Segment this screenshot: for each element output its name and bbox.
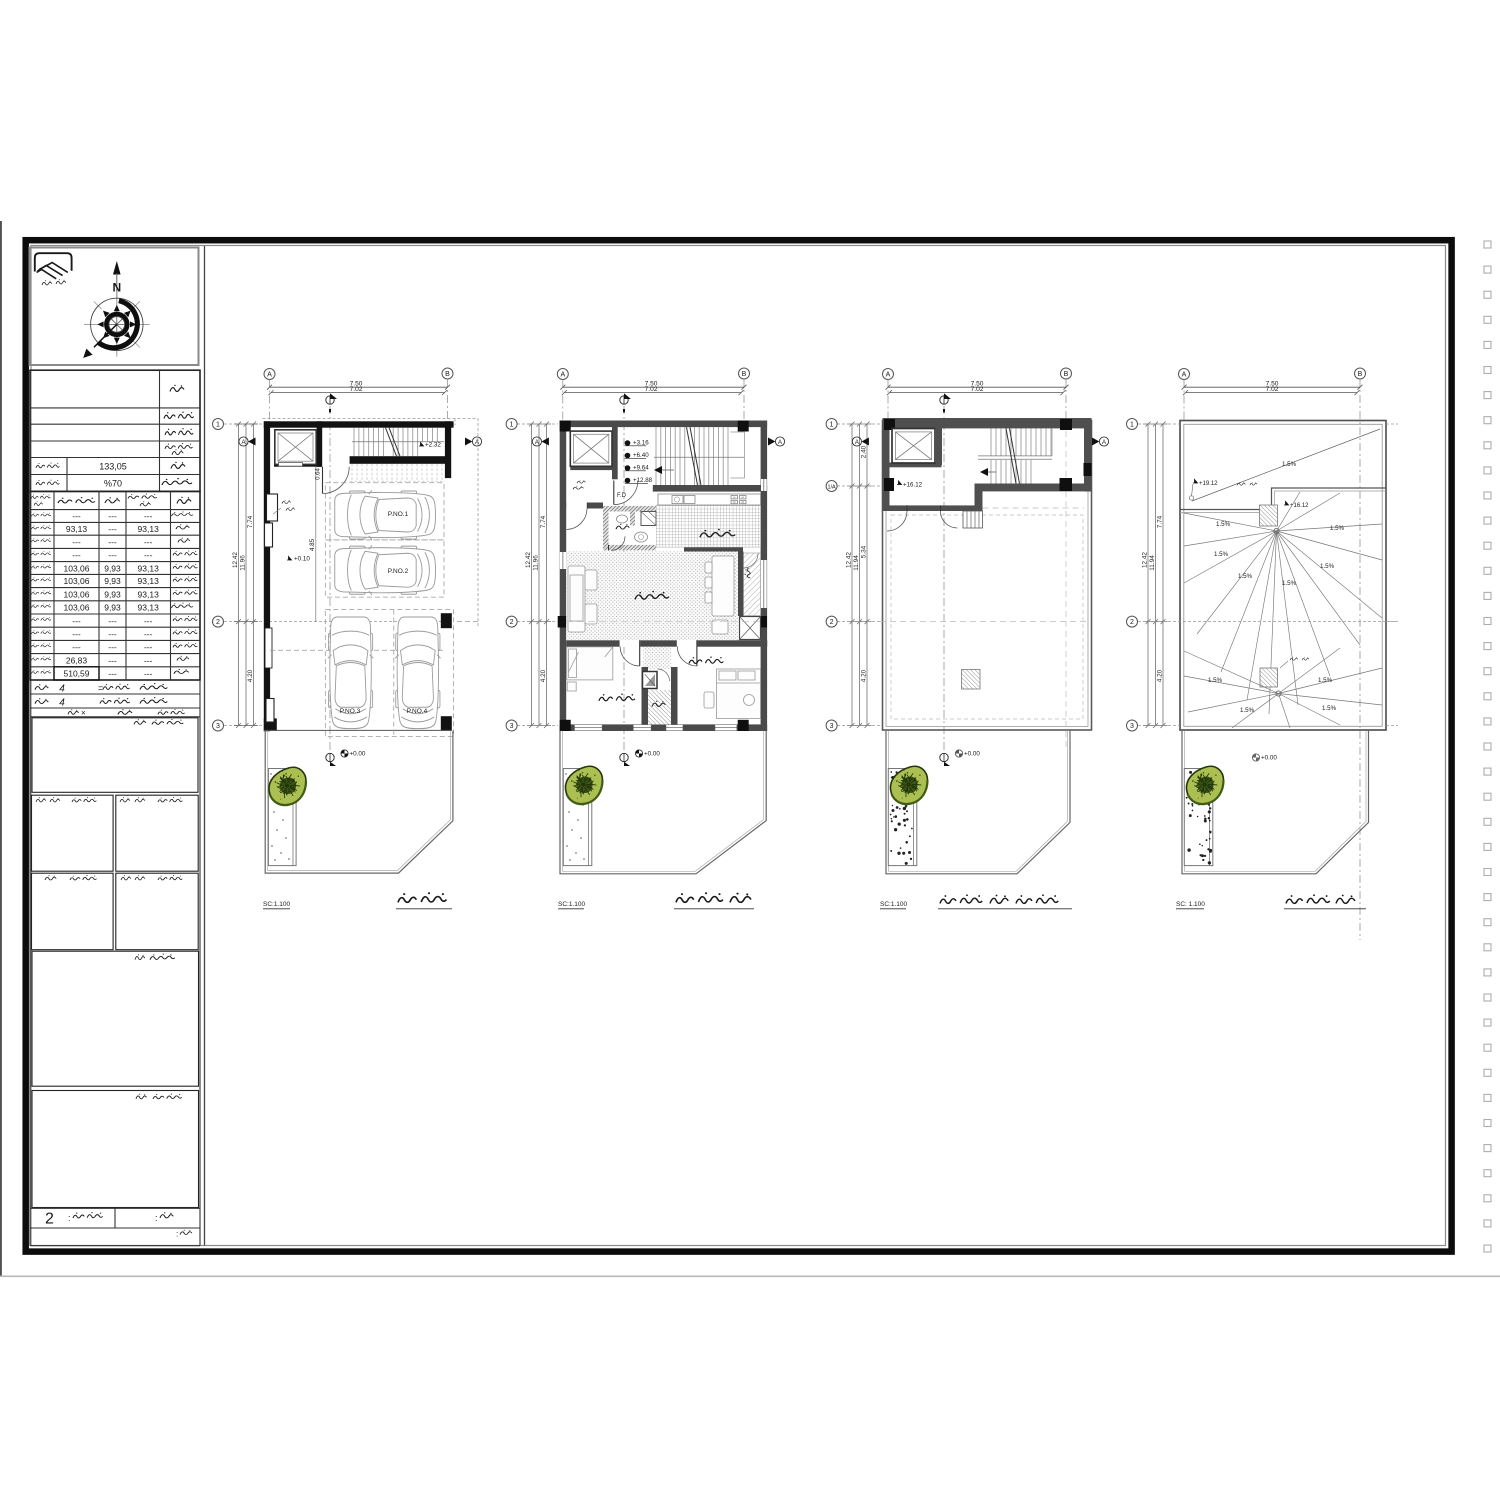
svg-text:---: ---	[144, 629, 153, 639]
svg-text:7.02: 7.02	[350, 386, 363, 393]
svg-text:A: A	[1182, 372, 1187, 379]
svg-text:7.74: 7.74	[1156, 515, 1163, 528]
svg-text:P.NO.1: P.NO.1	[388, 511, 409, 518]
svg-text:93,13: 93,13	[138, 524, 160, 534]
svg-text:A: A	[535, 440, 539, 446]
svg-text:---: ---	[144, 669, 153, 679]
svg-text:9,93: 9,93	[104, 603, 121, 613]
svg-text:11.94: 11.94	[853, 555, 860, 571]
svg-text:1.5%: 1.5%	[1282, 580, 1297, 587]
svg-text:---: ---	[144, 616, 153, 626]
svg-text:2: 2	[1130, 619, 1134, 626]
svg-text:B: B	[1064, 371, 1069, 378]
svg-text:SC:1.100: SC:1.100	[263, 901, 290, 908]
svg-text:SC:1.100: SC:1.100	[558, 901, 585, 908]
svg-text:2: 2	[830, 619, 834, 626]
svg-text:7.74: 7.74	[540, 515, 547, 528]
svg-text:B: B	[1358, 371, 1363, 378]
svg-text:---: ---	[144, 642, 153, 652]
svg-text:B: B	[445, 371, 450, 378]
svg-text:7.02: 7.02	[645, 386, 658, 393]
svg-text:---: ---	[72, 616, 81, 626]
svg-text:12.42: 12.42	[1141, 552, 1148, 568]
svg-text:4: 4	[59, 684, 65, 695]
svg-text:=: =	[98, 683, 103, 693]
svg-text:1.5%: 1.5%	[1318, 677, 1333, 684]
svg-text:+19.12: +19.12	[1199, 481, 1218, 487]
svg-text:510,59: 510,59	[64, 669, 90, 679]
svg-text:---: ---	[144, 550, 153, 560]
svg-text:3: 3	[830, 723, 834, 730]
svg-text:B: B	[742, 371, 747, 378]
svg-text:A: A	[778, 440, 782, 446]
svg-text:11.96: 11.96	[239, 555, 246, 571]
svg-text:SC:1.100: SC:1.100	[880, 901, 907, 908]
svg-text:+0.00: +0.00	[964, 751, 980, 758]
svg-text:3: 3	[510, 723, 514, 730]
svg-text:---: ---	[144, 537, 153, 547]
svg-text:1: 1	[510, 422, 514, 429]
svg-text:+2.32: +2.32	[425, 442, 441, 449]
svg-text:A: A	[886, 372, 891, 379]
svg-text:A: A	[560, 372, 565, 379]
svg-text:93,13: 93,13	[66, 524, 88, 534]
svg-text:A: A	[1102, 440, 1106, 446]
svg-text:---: ---	[144, 655, 153, 665]
svg-text:---: ---	[72, 550, 81, 560]
svg-text:2: 2	[510, 619, 514, 626]
svg-text:103,06: 103,06	[64, 563, 90, 573]
svg-text:---: ---	[108, 642, 117, 652]
svg-text:1.5%: 1.5%	[1208, 677, 1223, 684]
svg-text:F.D: F.D	[617, 493, 627, 499]
svg-text:---: ---	[108, 524, 117, 534]
svg-text:P.NO.3: P.NO.3	[340, 708, 361, 715]
svg-text:4.20: 4.20	[1156, 669, 1163, 682]
svg-text:26,83: 26,83	[66, 655, 88, 665]
svg-text:1.5%: 1.5%	[1240, 707, 1255, 714]
svg-text:4: 4	[59, 698, 65, 709]
svg-text:---: ---	[108, 669, 117, 679]
svg-text:103,06: 103,06	[64, 576, 90, 586]
svg-text:1: 1	[830, 422, 834, 429]
svg-text:+0.00: +0.00	[1261, 755, 1277, 762]
svg-text:93,13: 93,13	[138, 563, 160, 573]
svg-text:A: A	[855, 440, 859, 446]
svg-text:+0.00: +0.00	[644, 751, 660, 758]
svg-text:---: ---	[72, 629, 81, 639]
svg-text:1.5%: 1.5%	[1216, 521, 1231, 528]
svg-text:---: ---	[72, 642, 81, 652]
svg-text:×: ×	[81, 709, 86, 718]
svg-text:7.02: 7.02	[971, 386, 984, 393]
svg-text:93,13: 93,13	[138, 576, 160, 586]
svg-text:2: 2	[45, 1211, 54, 1228]
svg-text:---: ---	[108, 550, 117, 560]
svg-text::: :	[68, 1213, 71, 1223]
svg-text:1/A: 1/A	[828, 484, 836, 490]
svg-text:103,06: 103,06	[64, 589, 90, 599]
svg-text:9,93: 9,93	[104, 589, 121, 599]
svg-text:---: ---	[108, 511, 117, 521]
svg-text:1.5%: 1.5%	[1322, 705, 1337, 712]
svg-text:+0.10: +0.10	[294, 556, 310, 563]
svg-text:%70: %70	[104, 479, 122, 489]
svg-text:12.42: 12.42	[525, 552, 532, 568]
svg-text:---: ---	[108, 537, 117, 547]
svg-text:2: 2	[216, 619, 220, 626]
svg-text:SC: 1.100: SC: 1.100	[1176, 901, 1205, 908]
svg-text:4.85: 4.85	[309, 538, 316, 551]
svg-text:0.64: 0.64	[316, 468, 322, 480]
svg-text:1.5%: 1.5%	[1320, 563, 1335, 570]
svg-text:---: ---	[108, 616, 117, 626]
svg-text:1.5%: 1.5%	[1214, 551, 1229, 558]
svg-text:1.5%: 1.5%	[1330, 525, 1345, 532]
svg-text:7.02: 7.02	[1266, 386, 1279, 393]
svg-text:A: A	[267, 372, 272, 379]
svg-text:1: 1	[1130, 422, 1134, 429]
svg-text:4.20: 4.20	[247, 669, 254, 682]
svg-text:2.40: 2.40	[860, 445, 867, 458]
svg-text:12.42: 12.42	[232, 552, 239, 568]
svg-text:93,13: 93,13	[138, 603, 160, 613]
svg-text:---: ---	[108, 629, 117, 639]
svg-text:1.5%: 1.5%	[1238, 573, 1253, 580]
svg-text:93,13: 93,13	[138, 589, 160, 599]
svg-text:7.74: 7.74	[247, 515, 254, 528]
svg-text:1.5%: 1.5%	[1282, 461, 1297, 468]
svg-text:12.42: 12.42	[845, 552, 852, 568]
svg-text:9,93: 9,93	[104, 576, 121, 586]
svg-text:1: 1	[216, 422, 220, 429]
svg-text:A: A	[241, 440, 245, 446]
svg-text::: :	[155, 1213, 158, 1223]
svg-text:P.NO.4: P.NO.4	[407, 708, 428, 715]
svg-text:11.96: 11.96	[532, 555, 539, 571]
svg-text:---: ---	[144, 511, 153, 521]
svg-text:P.NO.2: P.NO.2	[388, 568, 409, 575]
svg-text:5.34: 5.34	[860, 545, 867, 558]
svg-text:+16.12: +16.12	[903, 482, 923, 489]
svg-text::: :	[176, 1230, 178, 1239]
svg-text:4.20: 4.20	[860, 669, 867, 682]
svg-text:3: 3	[216, 723, 220, 730]
svg-text:103,06: 103,06	[64, 603, 90, 613]
svg-text:---: ---	[108, 655, 117, 665]
svg-text:+0.00: +0.00	[350, 751, 366, 758]
svg-text:3: 3	[1130, 723, 1134, 730]
svg-text:11.94: 11.94	[1149, 555, 1156, 571]
svg-text:4.20: 4.20	[540, 669, 547, 682]
svg-text:---: ---	[72, 511, 81, 521]
svg-text:133,05: 133,05	[99, 462, 127, 472]
svg-text:---: ---	[72, 537, 81, 547]
svg-text:A: A	[475, 440, 479, 446]
svg-text:9,93: 9,93	[104, 563, 121, 573]
